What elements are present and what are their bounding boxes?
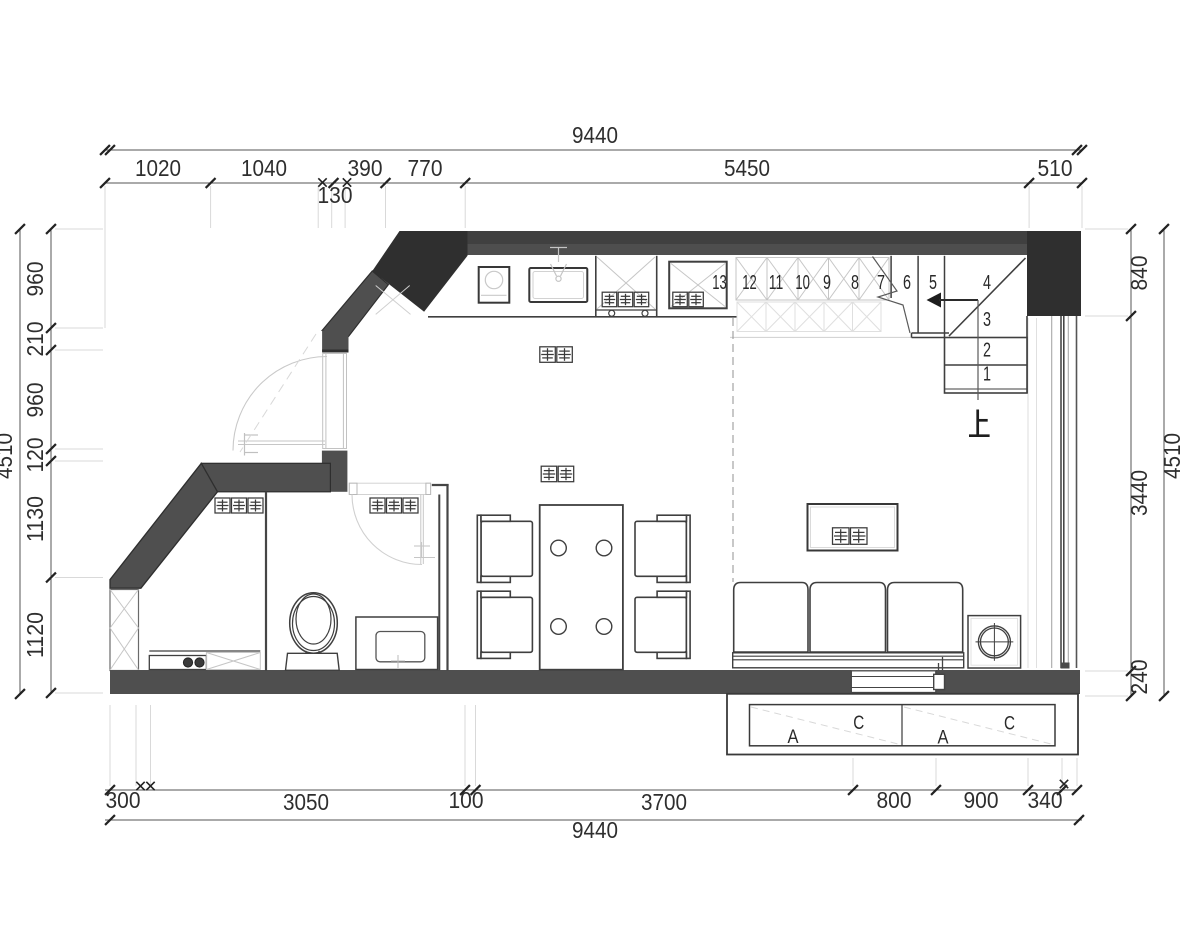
svg-text:6: 6 (903, 272, 911, 294)
svg-text:300: 300 (106, 787, 141, 813)
svg-text:340: 340 (1028, 787, 1063, 813)
svg-text:960: 960 (22, 262, 48, 297)
svg-text:3440: 3440 (1126, 470, 1152, 516)
svg-text:A: A (788, 727, 799, 748)
svg-text:510: 510 (1038, 155, 1073, 181)
svg-text:9440: 9440 (572, 817, 618, 843)
svg-text:A: A (938, 728, 949, 749)
svg-text:4: 4 (983, 272, 991, 294)
svg-text:4510: 4510 (1159, 433, 1185, 479)
svg-text:900: 900 (964, 787, 999, 813)
svg-text:1130: 1130 (22, 496, 48, 542)
svg-text:840: 840 (1126, 256, 1152, 291)
svg-text:4510: 4510 (0, 433, 17, 479)
svg-text:9440: 9440 (572, 122, 618, 148)
svg-text:960: 960 (22, 383, 48, 418)
svg-text:9: 9 (823, 272, 831, 294)
svg-text:13: 13 (712, 272, 727, 294)
svg-text:5: 5 (929, 272, 937, 294)
svg-text:210: 210 (22, 322, 48, 357)
svg-text:120: 120 (22, 438, 48, 473)
svg-text:12: 12 (742, 272, 757, 294)
svg-text:C: C (853, 713, 864, 734)
svg-text:11: 11 (769, 272, 784, 294)
svg-text:3700: 3700 (641, 789, 687, 815)
svg-text:8: 8 (851, 272, 859, 294)
svg-text:1040: 1040 (241, 155, 287, 181)
svg-text:7: 7 (877, 272, 885, 294)
svg-text:C: C (1004, 714, 1015, 735)
svg-text:770: 770 (408, 155, 443, 181)
svg-text:1: 1 (983, 364, 991, 386)
svg-text:100: 100 (449, 787, 484, 813)
svg-text:3050: 3050 (283, 789, 329, 815)
svg-text:1120: 1120 (22, 612, 48, 658)
svg-text:3: 3 (983, 309, 991, 331)
svg-text:390: 390 (348, 155, 383, 181)
svg-text:10: 10 (795, 272, 810, 294)
svg-text:130: 130 (318, 182, 353, 208)
svg-text:240: 240 (1126, 660, 1152, 695)
svg-text:1020: 1020 (135, 155, 181, 181)
svg-text:2: 2 (983, 340, 991, 362)
svg-text:5450: 5450 (724, 155, 770, 181)
svg-text:800: 800 (877, 787, 912, 813)
